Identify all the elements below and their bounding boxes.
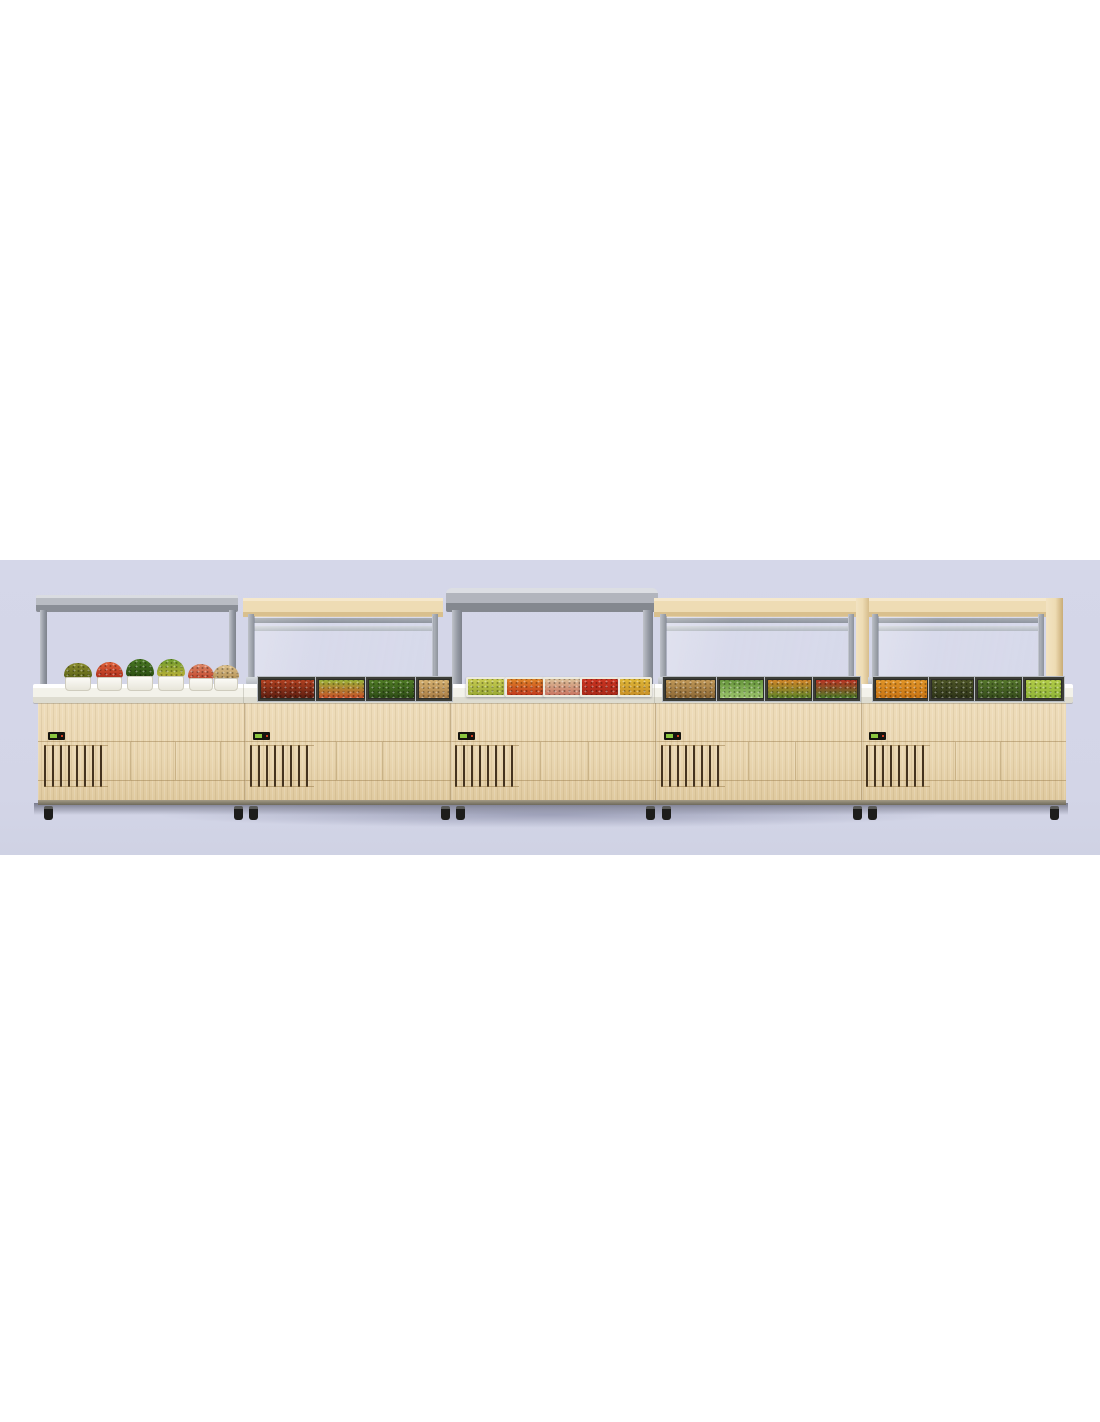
module-2-sill	[246, 677, 440, 684]
power-led	[471, 735, 473, 737]
caster-wheel	[646, 806, 655, 820]
caster-wheel	[1050, 806, 1059, 820]
panel-seam	[795, 742, 796, 780]
caster-wheel	[853, 806, 862, 820]
panel-seam	[130, 742, 131, 780]
ventilation-grille	[661, 745, 725, 787]
caster-wheel	[441, 806, 450, 820]
power-led	[61, 735, 63, 737]
ventilation-grille	[866, 745, 930, 787]
panel-seam	[220, 742, 221, 780]
module-joint	[655, 702, 657, 803]
led-readout	[255, 734, 262, 738]
control-panel-display	[253, 732, 270, 740]
module-4-glass-guard	[666, 616, 850, 680]
module-3-left-post	[452, 610, 462, 684]
caster-wheel	[249, 806, 258, 820]
power-led	[266, 735, 268, 737]
module-3-canopy-roof	[446, 588, 658, 612]
control-panel-display	[458, 732, 475, 740]
panel-seam	[336, 742, 337, 780]
panel-seam	[382, 742, 383, 780]
panel-seam	[1000, 742, 1001, 780]
module-5-sill	[868, 677, 1050, 684]
base-bottom-edge	[38, 800, 1066, 805]
counter-joint	[243, 684, 244, 703]
panel-seam	[540, 742, 541, 780]
module-1-canopy-roof	[36, 595, 238, 612]
module-joint	[244, 702, 246, 803]
module-2-glass-guard	[254, 616, 434, 680]
module-5-glass-guard	[878, 616, 1040, 680]
counter-joint	[654, 684, 655, 703]
caster-wheel	[662, 806, 671, 820]
module-5-wood-beam	[862, 598, 1063, 617]
led-readout	[50, 734, 57, 738]
panel-seam	[955, 742, 956, 780]
led-readout	[460, 734, 467, 738]
module-joint	[861, 702, 863, 803]
panel-seam	[588, 742, 589, 780]
panel-seam	[38, 741, 1066, 742]
ventilation-grille	[250, 745, 314, 787]
control-panel-display	[869, 732, 886, 740]
ventilation-grille	[455, 745, 519, 787]
caster-wheel	[234, 806, 243, 820]
module-divider-post	[856, 598, 869, 686]
control-panel-display	[48, 732, 65, 740]
module-1-right-post	[229, 610, 236, 684]
module-1-left-post	[40, 610, 47, 684]
led-readout	[666, 734, 673, 738]
serving-counter-top	[33, 684, 1073, 703]
control-panel-display	[664, 732, 681, 740]
ventilation-grille	[44, 745, 108, 787]
unit-end-post	[1046, 598, 1063, 686]
module-4-sill	[658, 677, 856, 684]
counter-joint	[448, 684, 449, 703]
caster-wheel	[868, 806, 877, 820]
product-render-scene: 3D product render of a five-module buffe…	[0, 0, 1100, 1422]
counter-joint	[861, 684, 862, 703]
module-2-wood-beam	[243, 598, 443, 617]
power-led	[882, 735, 884, 737]
module-joint	[450, 702, 452, 803]
caster-wheel	[456, 806, 465, 820]
power-led	[677, 735, 679, 737]
panel-seam	[748, 742, 749, 780]
led-readout	[871, 734, 878, 738]
panel-seam	[175, 742, 176, 780]
module-3-right-post	[643, 610, 653, 684]
caster-wheel	[44, 806, 53, 820]
module-4-wood-beam	[654, 598, 862, 617]
